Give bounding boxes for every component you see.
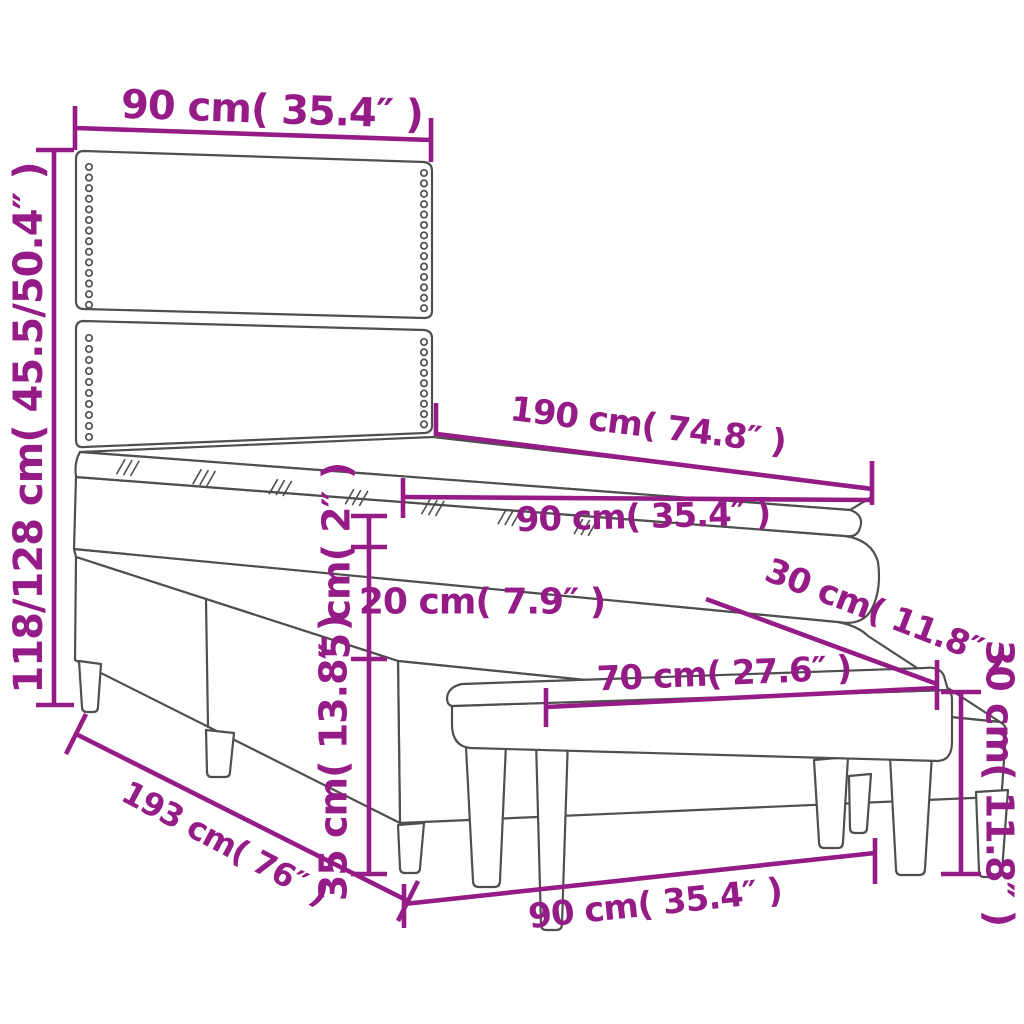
dim-label-bench-height: 30 cm( 11.8″ ) — [978, 640, 1022, 926]
headboard-top-panel — [76, 151, 432, 318]
bed-leg-front-corner — [398, 823, 424, 873]
bench-leg-front-right — [890, 754, 932, 875]
bench-leg-back-left — [466, 744, 506, 887]
headboard-bottom-panel — [76, 321, 432, 447]
dim-label-bed-width: 90 cm( 35.4″ ) — [526, 871, 783, 937]
dim-label-mattress-thickness: 20 cm( 7.9″ ) — [359, 582, 605, 623]
dim-label-bed-length: 193 cm( 76″ ) — [116, 773, 335, 913]
bench-leg-back-right — [814, 757, 848, 848]
dim-headboard-width: 90 cm( 35.4″ ) — [75, 82, 431, 162]
dim-label-overall-height: 118/128 cm( 45.5/50.4″ ) — [6, 162, 52, 693]
dim-overall-height: 118/128 cm( 45.5/50.4″ ) — [6, 150, 74, 705]
diagram-canvas: 90 cm( 35.4″ ) 118/128 cm( 45.5/50.4″ ) … — [0, 0, 1024, 1024]
bed-dimension-diagram: 90 cm( 35.4″ ) 118/128 cm( 45.5/50.4″ ) … — [0, 0, 1024, 1024]
bed-leg-front-middle — [206, 730, 234, 777]
dim-label-mattress-width: 90 cm( 35.4″ ) — [515, 494, 771, 541]
bench-leg-middle-right — [849, 774, 871, 833]
bed-leg-head-left — [79, 661, 101, 712]
